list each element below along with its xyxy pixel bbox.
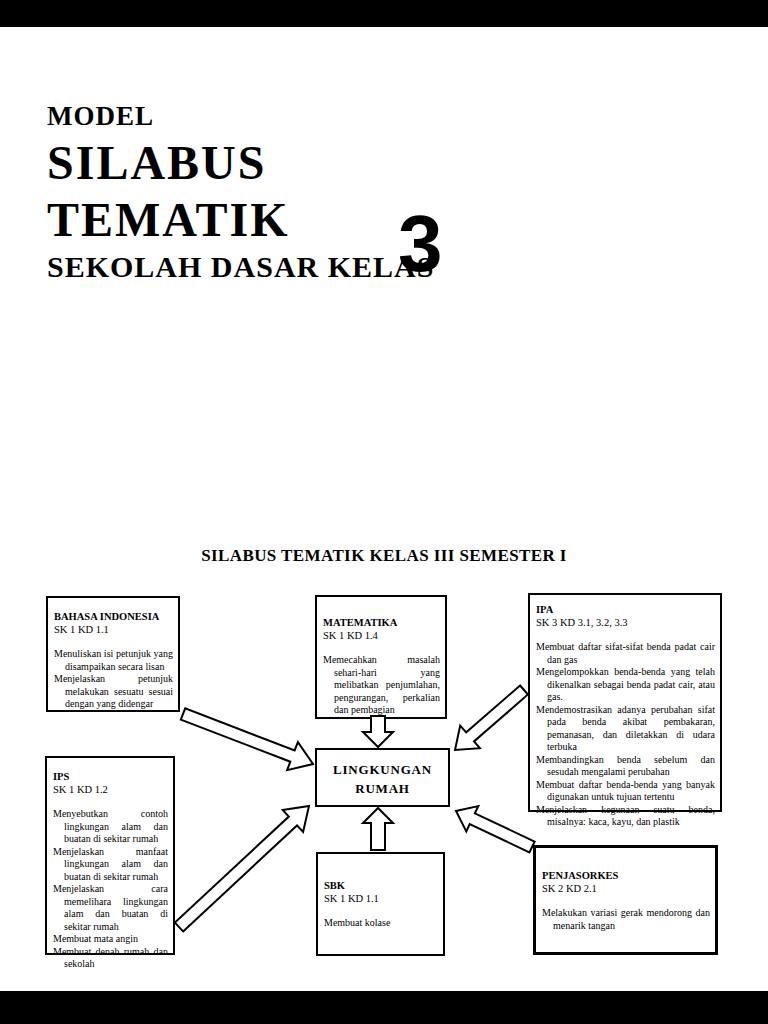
- subject-code: SK 2 KD 2.1: [542, 883, 710, 896]
- competency-list: Menuliskan isi petunjuk yang disampaikan…: [54, 648, 173, 711]
- arrow-penjasorkes-to-center: [456, 806, 535, 852]
- subject-title: SBK: [324, 880, 438, 893]
- diagram-heading: SILABUS TEMATIK KELAS III SEMESTER I: [0, 546, 768, 566]
- competency-list: Membuat daftar sifat-sifat benda padat c…: [536, 641, 715, 829]
- subject-title: PENJASORKES: [542, 870, 710, 883]
- subject-box-ips: IPS SK 1 KD 1.2 Menyebutkan contoh lingk…: [45, 756, 175, 955]
- class-number: 3: [398, 204, 443, 284]
- subject-box-bahasa-indonesia: BAHASA INDONESIA SK 1 KD 1.1 Menuliskan …: [46, 596, 180, 712]
- subject-code: SK 1 KD 1.2: [53, 784, 168, 797]
- subject-title: BAHASA INDONESIA: [54, 611, 173, 624]
- competency-item: Menjelaskan manfaat lingkungan alam dan …: [53, 846, 168, 884]
- competency-item: Mendemostrasikan adanya perubahan sifat …: [536, 704, 715, 754]
- title-line-sekolah: SEKOLAH DASAR KELAS: [47, 248, 434, 286]
- letterbox-bottom: [0, 991, 768, 1024]
- title-line-tematik: TEMATIK: [47, 191, 434, 248]
- subject-title: MATEMATIKA: [323, 617, 440, 630]
- arrow-matematika-to-center: [363, 716, 393, 747]
- competency-item: Menjelaskan cara memelihara lingkungan a…: [53, 883, 168, 933]
- document-page: MODEL SILABUS TEMATIK SEKOLAH DASAR KELA…: [0, 0, 768, 1024]
- competency-item: Menuliskan isi petunjuk yang disampaikan…: [54, 648, 173, 673]
- subject-title: IPS: [53, 771, 168, 784]
- subject-title: IPA: [536, 604, 715, 617]
- competency-item: Menjelaskan petunjuk melakukan sesuatu s…: [54, 673, 173, 711]
- competency-list: Memecahkan masalah sehari-hari yang meli…: [323, 654, 440, 717]
- arrow-ips-to-center: [175, 806, 309, 931]
- competency-item: Melakukan variasi gerak mendorong dan me…: [542, 907, 710, 932]
- title-line-model: MODEL: [47, 98, 434, 134]
- competency-item: Mengelompokkan benda-benda yang telah di…: [536, 666, 715, 704]
- arrow-bahasa-to-center: [181, 708, 313, 770]
- arrow-sbk-to-center: [363, 808, 393, 850]
- competency-item: Membuat denah rumah dan sekolah: [53, 946, 168, 971]
- competency-item: Membuat daftar sifat-sifat benda padat c…: [536, 641, 715, 666]
- theme-line: RUMAH: [317, 779, 448, 798]
- subject-box-matematika: MATEMATIKA SK 1 KD 1.4 Memecahkan masala…: [315, 595, 447, 719]
- competency-list: Membuat kolase: [324, 917, 438, 930]
- letterbox-top: [0, 0, 768, 27]
- document-title: MODEL SILABUS TEMATIK SEKOLAH DASAR KELA…: [47, 98, 434, 286]
- competency-item: Membuat daftar benda-benda yang banyak d…: [536, 779, 715, 804]
- subject-code: SK 3 KD 3.1, 3.2, 3.3: [536, 617, 715, 630]
- competency-item: Membandingkan benda sebelum dan sesudah …: [536, 754, 715, 779]
- competency-item: Membuat mata angin: [53, 933, 168, 946]
- arrow-ipa-to-center: [455, 686, 528, 751]
- competency-item: Menyebutkan contoh lingkungan alam dan b…: [53, 808, 168, 846]
- theme-line: LINGKUNGAN: [317, 760, 448, 779]
- competency-list: Melakukan variasi gerak mendorong dan me…: [542, 907, 710, 932]
- competency-item: Membuat kolase: [324, 917, 438, 930]
- title-line-silabus: SILABUS: [47, 134, 434, 191]
- subject-code: SK 1 KD 1.1: [324, 893, 438, 906]
- subject-code: SK 1 KD 1.4: [323, 630, 440, 643]
- competency-item: Menjelaskan kegunaan suatu benda, misaln…: [536, 804, 715, 829]
- subject-box-penjasorkes: PENJASORKES SK 2 KD 2.1 Melakukan varias…: [533, 845, 718, 955]
- subject-code: SK 1 KD 1.1: [54, 624, 173, 637]
- subject-box-ipa: IPA SK 3 KD 3.1, 3.2, 3.3 Membuat daftar…: [528, 593, 722, 812]
- subject-box-sbk: SBK SK 1 KD 1.1 Membuat kolase: [316, 852, 445, 956]
- competency-list: Menyebutkan contoh lingkungan alam dan b…: [53, 808, 168, 971]
- competency-item: Memecahkan masalah sehari-hari yang meli…: [323, 654, 440, 717]
- theme-box-lingkungan-rumah: LINGKUNGAN RUMAH: [315, 748, 450, 807]
